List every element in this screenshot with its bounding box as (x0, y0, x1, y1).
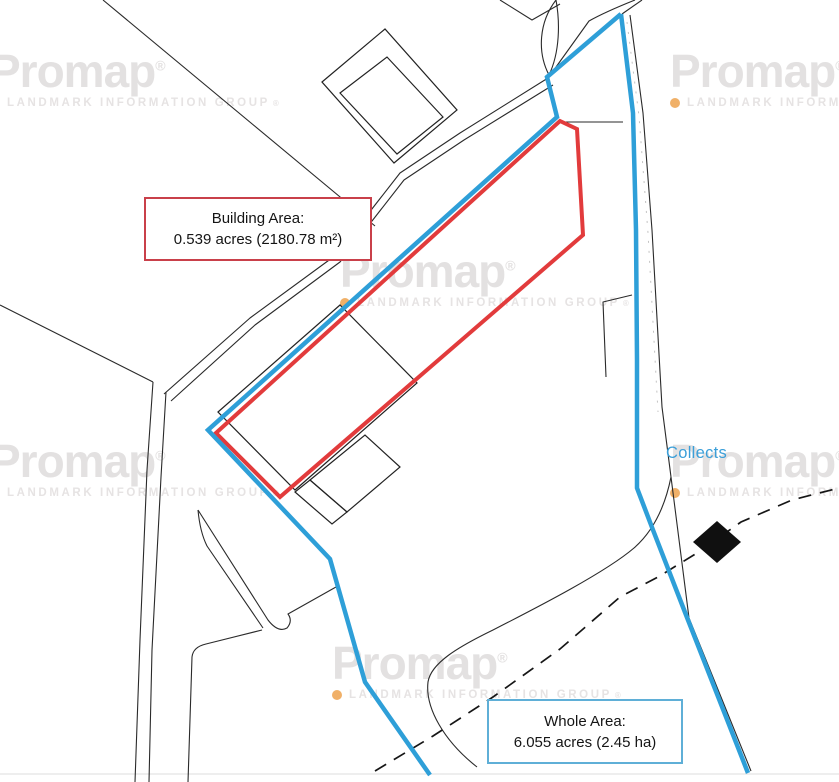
whole-area-title: Whole Area: (544, 711, 626, 732)
collects-label: Collects (666, 444, 727, 463)
marker-diamond (693, 521, 741, 563)
field-boundary (603, 295, 632, 377)
whole-area-outline-east (621, 14, 748, 773)
track-line (149, 392, 166, 782)
map-canvas[interactable]: Promap® LANDMARK INFORMATION GROUP® Prom… (0, 0, 839, 782)
field-boundary (0, 305, 153, 382)
building-footprint (340, 57, 443, 154)
field-boundary (500, 0, 560, 20)
drive-boundary (198, 510, 263, 628)
building-footprint (295, 480, 347, 524)
road-line (671, 477, 751, 771)
field-boundary (541, 0, 558, 75)
drive-boundary (198, 510, 336, 629)
building-area-value: 0.539 acres (2180.78 m²) (174, 229, 342, 250)
whole-area-value: 6.055 acres (2.45 ha) (514, 732, 657, 753)
whole-area-outline-west (208, 14, 621, 775)
building-area-title: Building Area: (212, 208, 305, 229)
map-linework (0, 0, 839, 782)
whole-area-label-box: Whole Area: 6.055 acres (2.45 ha) (487, 699, 683, 764)
field-boundary (622, 0, 642, 14)
building-area-outline (216, 121, 583, 497)
field-boundary (103, 0, 375, 226)
building-area-label-box: Building Area: 0.539 acres (2180.78 m²) (144, 197, 372, 261)
parcel-dotted-line (627, 22, 658, 412)
building-footprint (310, 435, 400, 512)
field-boundary (188, 630, 262, 782)
